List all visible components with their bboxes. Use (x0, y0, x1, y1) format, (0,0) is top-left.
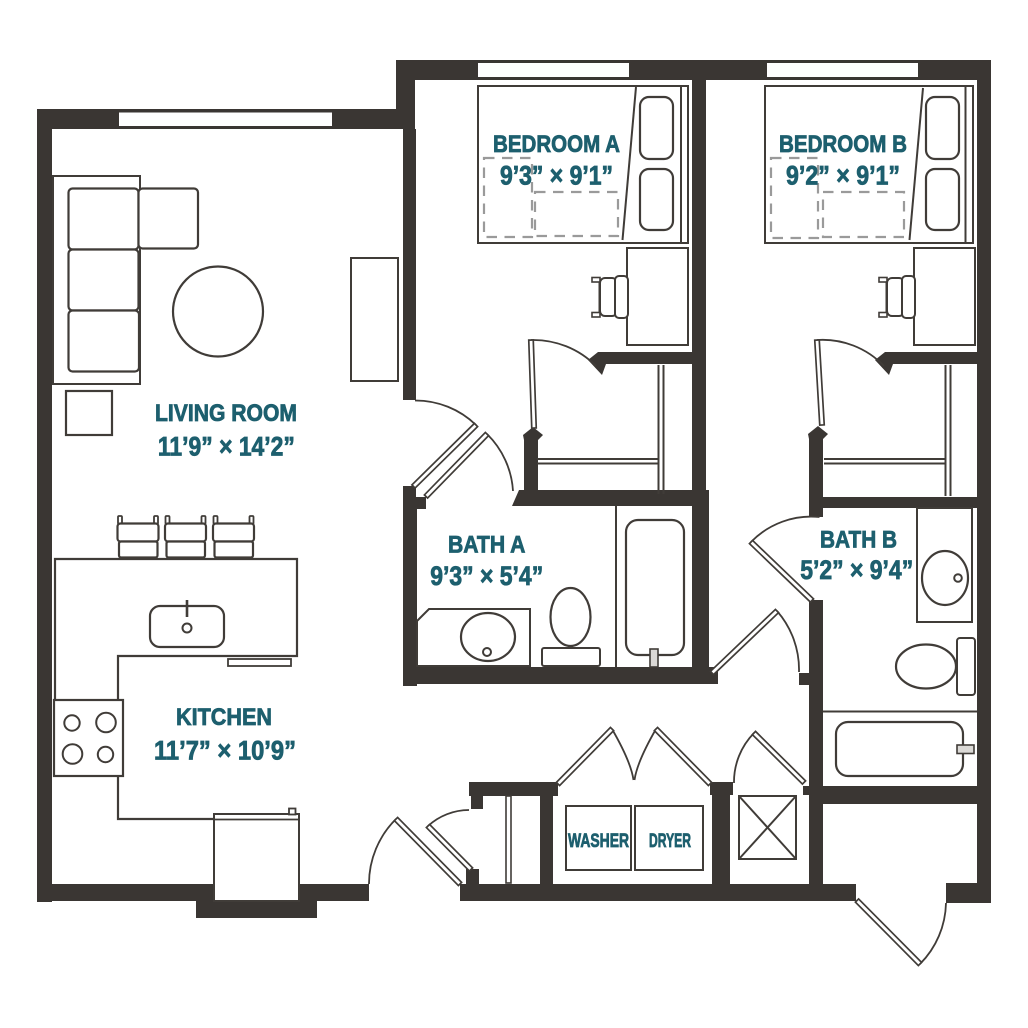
svg-text:WASHER: WASHER (568, 831, 629, 852)
svg-text:9’2” × 9’1”: 9’2” × 9’1” (786, 161, 900, 191)
svg-text:KITCHEN: KITCHEN (176, 704, 272, 731)
svg-text:5’2” × 9’4”: 5’2” × 9’4” (800, 555, 913, 585)
svg-text:LIVING ROOM: LIVING ROOM (155, 400, 297, 427)
svg-text:11’7” × 10’9”: 11’7” × 10’9” (154, 736, 296, 766)
svg-text:9’3” × 9’1”: 9’3” × 9’1” (500, 161, 613, 191)
svg-text:DRYER: DRYER (649, 831, 691, 852)
svg-text:BATH B: BATH B (820, 527, 897, 554)
svg-text:BEDROOM A: BEDROOM A (493, 131, 620, 158)
svg-text:9’3” × 5’4”: 9’3” × 5’4” (430, 561, 543, 591)
svg-text:BATH A: BATH A (448, 531, 526, 558)
svg-text:BEDROOM B: BEDROOM B (779, 131, 907, 158)
svg-text:11’9” × 14’2”: 11’9” × 14’2” (158, 431, 295, 461)
